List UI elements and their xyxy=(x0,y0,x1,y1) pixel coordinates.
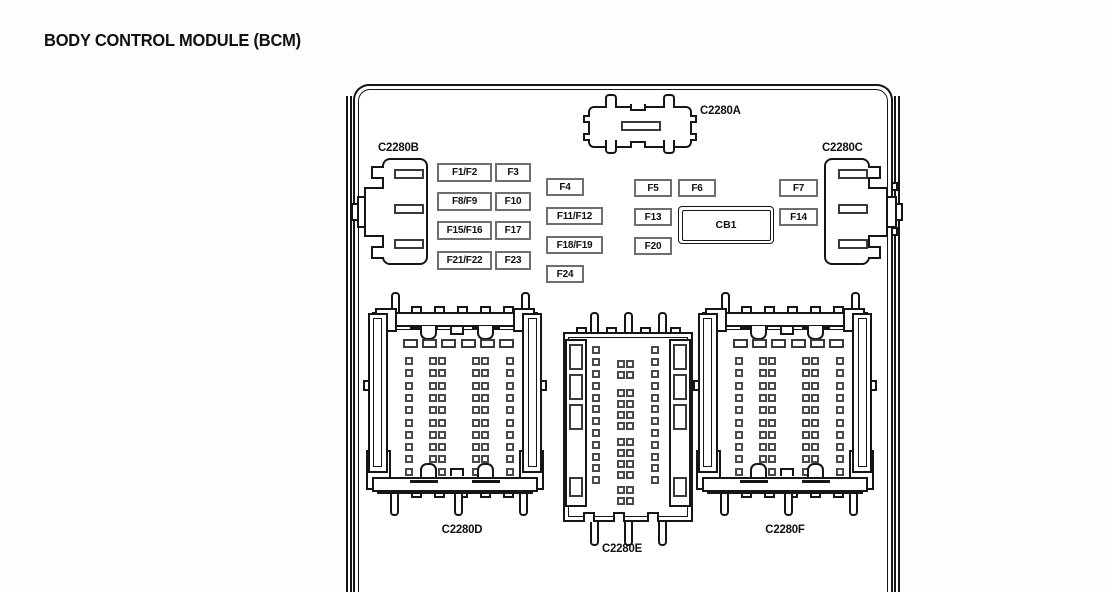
c2280c-slot xyxy=(838,204,868,214)
c2280c-step xyxy=(868,166,881,179)
c2280a-notch xyxy=(630,104,646,111)
c2280e-part xyxy=(592,464,600,472)
c2280f-part xyxy=(735,369,743,377)
c2280e-part xyxy=(617,389,625,397)
c2280f-part xyxy=(735,431,743,439)
c2280f-part xyxy=(703,318,712,467)
c2280f-part xyxy=(768,431,776,439)
c2280f-part xyxy=(802,480,830,483)
c2280f-part xyxy=(802,406,810,414)
c2280f-part xyxy=(829,339,844,348)
c2280d-part xyxy=(499,339,514,348)
c2280d-part xyxy=(506,431,514,439)
c2280d-part xyxy=(506,443,514,451)
c2280d-part xyxy=(429,443,437,451)
c2280e-part xyxy=(651,476,659,484)
c2280f-part xyxy=(750,326,767,340)
c2280d-part xyxy=(450,468,464,476)
c2280f-part xyxy=(768,406,776,414)
c2280e-part xyxy=(569,374,583,400)
c2280e-part xyxy=(592,394,600,402)
c2280f-part xyxy=(807,463,824,477)
c2280d-part xyxy=(477,463,494,477)
c2280e-part xyxy=(673,477,687,497)
left-mount-rail xyxy=(346,96,352,592)
c2280e-part xyxy=(592,453,600,461)
c2280a-keyway xyxy=(690,133,697,141)
c2280f-part xyxy=(836,468,844,476)
c2280e-part xyxy=(673,374,687,400)
c2280d-part xyxy=(472,431,480,439)
rail-fastener xyxy=(891,227,898,236)
c2280e-part xyxy=(569,344,583,370)
c2280d-part xyxy=(438,468,446,476)
fuse-box-f5: F5 xyxy=(634,179,672,197)
c2280f-part xyxy=(810,339,825,348)
c2280e-part xyxy=(592,476,600,484)
c2280e-part xyxy=(651,346,659,354)
c2280e-part xyxy=(617,411,625,419)
c2280e-part xyxy=(626,438,634,446)
c2280d-part xyxy=(481,443,489,451)
c2280d-part xyxy=(472,419,480,427)
c2280d-part xyxy=(405,455,413,463)
c2280f-part xyxy=(836,443,844,451)
c2280c-step xyxy=(868,246,881,259)
c2280f-part xyxy=(768,382,776,390)
c2280e-part xyxy=(617,422,625,430)
c2280f-part xyxy=(836,394,844,402)
c2280d-part xyxy=(405,357,413,365)
c2280f-part xyxy=(735,382,743,390)
c2280e-part xyxy=(592,370,600,378)
c2280a-keyway xyxy=(690,115,697,123)
c2280f-part xyxy=(759,443,767,451)
c2280f-part xyxy=(811,443,819,451)
c2280d-part xyxy=(429,369,437,377)
c2280e-part xyxy=(626,497,634,505)
fuse-box-f6: F6 xyxy=(678,179,716,197)
fuse-box-f21-f22: F21/F22 xyxy=(437,251,492,270)
fuse-box-f17: F17 xyxy=(495,221,531,240)
c2280e-part xyxy=(626,471,634,479)
c2280d-part xyxy=(438,382,446,390)
right-mount-rail xyxy=(894,96,900,592)
c2280e-part xyxy=(583,512,595,522)
c2280a-tab xyxy=(605,140,617,154)
c2280f-part xyxy=(858,318,867,467)
c2280d-part xyxy=(420,463,437,477)
c2280d-part xyxy=(422,339,437,348)
c2280f-part xyxy=(802,419,810,427)
c2280f-part xyxy=(811,431,819,439)
c2280d-part xyxy=(429,419,437,427)
c2280f-part xyxy=(836,406,844,414)
c2280f-part xyxy=(811,382,819,390)
c2280e-part xyxy=(617,497,625,505)
c2280d-part xyxy=(438,369,446,377)
c2280f-part xyxy=(768,468,776,476)
c2280d-part xyxy=(480,339,495,348)
c2280e-part xyxy=(617,438,625,446)
c2280b-slot xyxy=(394,169,424,179)
c2280e-part xyxy=(651,441,659,449)
c2280d-part xyxy=(438,406,446,414)
c2280f-part xyxy=(759,357,767,365)
c2280d-part xyxy=(429,406,437,414)
c2280e-part xyxy=(592,346,600,354)
c2280e-part xyxy=(592,429,600,437)
c2280e-part xyxy=(613,512,625,522)
c2280d-part xyxy=(405,419,413,427)
c2280d-part xyxy=(481,419,489,427)
c2280f-part xyxy=(811,406,819,414)
c2280d-part xyxy=(472,357,480,365)
c2280b-slot xyxy=(394,204,424,214)
fuse-box-f18-f19: F18/F19 xyxy=(546,236,603,254)
c2280e-part xyxy=(647,512,659,522)
c2280a-keyway xyxy=(583,133,590,141)
c2280d-part xyxy=(438,357,446,365)
c2280d-part xyxy=(438,455,446,463)
c2280e-part xyxy=(626,486,634,494)
c2280e-part xyxy=(673,344,687,370)
fuse-box-f11-f12: F11/F12 xyxy=(546,207,603,225)
connector-c2280e-label: C2280E xyxy=(565,541,679,555)
c2280d-part xyxy=(405,406,413,414)
c2280f-part xyxy=(759,394,767,402)
c2280d-part xyxy=(477,326,494,340)
c2280f-part xyxy=(735,468,743,476)
c2280c-slot xyxy=(838,239,868,249)
c2280e-part xyxy=(626,371,634,379)
c2280d-part xyxy=(405,394,413,402)
c2280d-part xyxy=(472,406,480,414)
rail-fastener xyxy=(891,182,898,191)
c2280f-part xyxy=(771,339,786,348)
c2280f-part xyxy=(802,431,810,439)
c2280f-part xyxy=(802,369,810,377)
c2280e-part xyxy=(651,464,659,472)
c2280d-part xyxy=(506,394,514,402)
c2280d-part xyxy=(472,455,480,463)
c2280e-part xyxy=(651,405,659,413)
c2280f-part xyxy=(791,339,806,348)
c2280b-step xyxy=(371,166,384,179)
fuse-box-f23: F23 xyxy=(495,251,531,270)
c2280e-part xyxy=(626,389,634,397)
c2280e-part xyxy=(617,400,625,408)
c2280d-part xyxy=(481,369,489,377)
c2280e-part xyxy=(569,404,583,430)
c2280f-part xyxy=(768,357,776,365)
c2280f-part xyxy=(735,406,743,414)
c2280f-part xyxy=(759,419,767,427)
c2280e-part xyxy=(569,477,583,497)
circuit-breaker-cb1-label: CB1 xyxy=(682,210,771,241)
c2280f-part xyxy=(836,369,844,377)
c2280f-part xyxy=(759,382,767,390)
c2280d-part xyxy=(429,382,437,390)
c2280e-part xyxy=(626,411,634,419)
c2280a-center-slot xyxy=(621,121,661,131)
c2280e-part xyxy=(626,460,634,468)
c2280f-part xyxy=(759,406,767,414)
c2280d-part xyxy=(481,455,489,463)
c2280e-part xyxy=(617,460,625,468)
c2280d-part xyxy=(481,406,489,414)
c2280e-part xyxy=(651,417,659,425)
c2280f-part xyxy=(802,382,810,390)
c2280f-part xyxy=(836,419,844,427)
c2280d-part xyxy=(450,327,464,335)
fuse-box-f13: F13 xyxy=(634,208,672,226)
c2280e-part xyxy=(617,449,625,457)
c2280d-part xyxy=(429,394,437,402)
c2280d-part xyxy=(506,406,514,414)
c2280e-part xyxy=(651,394,659,402)
c2280e-part xyxy=(651,370,659,378)
c2280e-part xyxy=(626,360,634,368)
c2280d-part xyxy=(441,339,456,348)
c2280f-part xyxy=(836,431,844,439)
c2280f-part xyxy=(735,443,743,451)
c2280e-part xyxy=(592,358,600,366)
c2280d-part xyxy=(405,369,413,377)
c2280a-tab xyxy=(663,140,675,154)
c2280e-part xyxy=(651,453,659,461)
c2280d-part xyxy=(472,443,480,451)
c2280f-part xyxy=(733,339,748,348)
c2280f-part xyxy=(811,369,819,377)
c2280f-part xyxy=(802,443,810,451)
c2280f-part xyxy=(768,419,776,427)
c2280e-part xyxy=(592,382,600,390)
c2280d-part xyxy=(405,443,413,451)
fuse-box-f24: F24 xyxy=(546,265,584,283)
connector-c2280f-label: C2280F xyxy=(728,522,842,536)
c2280e-part xyxy=(626,400,634,408)
c2280d-part xyxy=(506,468,514,476)
fuse-box-f7: F7 xyxy=(779,179,818,197)
c2280d-part xyxy=(405,431,413,439)
c2280e-part xyxy=(617,471,625,479)
c2280d-part xyxy=(506,419,514,427)
c2280f-part xyxy=(811,455,819,463)
c2280e-part xyxy=(651,382,659,390)
c2280d-part xyxy=(506,369,514,377)
c2280d-part xyxy=(461,339,476,348)
c2280f-part xyxy=(807,326,824,340)
c2280e-part xyxy=(617,371,625,379)
connector-c2280c-label: C2280C xyxy=(822,140,863,154)
c2280b-latch xyxy=(364,187,384,237)
c2280e-part xyxy=(592,441,600,449)
c2280e-part xyxy=(626,449,634,457)
c2280f-part xyxy=(780,327,794,335)
c2280d-part xyxy=(429,455,437,463)
c2280e-part xyxy=(651,429,659,437)
c2280f-part xyxy=(836,382,844,390)
c2280f-part xyxy=(759,455,767,463)
bcm-fuse-diagram: BODY CONTROL MODULE (BCM) C2280A C2280B … xyxy=(0,0,1112,592)
c2280f-part xyxy=(752,339,767,348)
fuse-box-f14: F14 xyxy=(779,208,818,226)
c2280f-part xyxy=(759,431,767,439)
c2280d-part xyxy=(429,357,437,365)
c2280a-notch xyxy=(630,141,646,148)
c2280a-tab xyxy=(605,94,617,108)
c2280e-part xyxy=(592,405,600,413)
fuse-box-f3: F3 xyxy=(495,163,531,182)
fuse-box-f4: F4 xyxy=(546,178,584,196)
connector-c2280d-label: C2280D xyxy=(405,522,519,536)
c2280c-latch xyxy=(868,187,888,237)
c2280d-part xyxy=(481,382,489,390)
c2280b-step xyxy=(371,246,384,259)
c2280f-part xyxy=(735,419,743,427)
c2280f-part xyxy=(802,394,810,402)
fuse-box-f1-f2: F1/F2 xyxy=(437,163,492,182)
c2280d-part xyxy=(438,443,446,451)
c2280d-part xyxy=(410,480,438,483)
c2280f-part xyxy=(768,455,776,463)
c2280d-part xyxy=(481,357,489,365)
c2280b-slot xyxy=(394,239,424,249)
c2280f-part xyxy=(735,357,743,365)
connector-c2280a-label: C2280A xyxy=(700,103,741,117)
c2280d-part xyxy=(403,339,418,348)
c2280d-part xyxy=(405,382,413,390)
c2280d-part xyxy=(420,326,437,340)
c2280d-part xyxy=(506,382,514,390)
c2280d-part xyxy=(506,455,514,463)
c2280e-part xyxy=(651,358,659,366)
c2280f-part xyxy=(802,357,810,365)
c2280e-part xyxy=(592,417,600,425)
c2280d-part xyxy=(472,480,500,483)
c2280d-part xyxy=(481,431,489,439)
c2280f-part xyxy=(802,455,810,463)
c2280f-part xyxy=(740,480,768,483)
c2280d-part xyxy=(429,431,437,439)
c2280e-part xyxy=(673,404,687,430)
c2280d-part xyxy=(438,431,446,439)
c2280f-part xyxy=(836,455,844,463)
c2280f-part xyxy=(811,394,819,402)
c2280d-part xyxy=(472,369,480,377)
c2280c-slot xyxy=(838,169,868,179)
c2280f-part xyxy=(780,468,794,476)
c2280d-part xyxy=(372,477,538,492)
c2280d-part xyxy=(472,382,480,390)
c2280f-part xyxy=(768,394,776,402)
c2280e-part xyxy=(626,422,634,430)
c2280a-keyway xyxy=(583,115,590,123)
c2280f-part xyxy=(811,357,819,365)
c2280d-part xyxy=(438,394,446,402)
c2280a-tab xyxy=(663,94,675,108)
c2280d-part xyxy=(438,419,446,427)
c2280d-part xyxy=(373,318,382,467)
c2280d-part xyxy=(405,468,413,476)
c2280f-part xyxy=(836,357,844,365)
c2280f-part xyxy=(759,369,767,377)
c2280d-part xyxy=(472,394,480,402)
c2280f-part xyxy=(811,419,819,427)
c2280f-part xyxy=(702,477,868,492)
fuse-box-f8-f9: F8/F9 xyxy=(437,192,492,211)
fuse-box-f10: F10 xyxy=(495,192,531,211)
fuse-box-f15-f16: F15/F16 xyxy=(437,221,492,240)
c2280f-part xyxy=(750,463,767,477)
c2280d-part xyxy=(528,318,537,467)
c2280e-part xyxy=(617,486,625,494)
c2280f-part xyxy=(768,369,776,377)
connector-c2280b-label: C2280B xyxy=(378,140,419,154)
fuse-box-f20: F20 xyxy=(634,237,672,255)
c2280d-part xyxy=(481,394,489,402)
c2280f-part xyxy=(735,455,743,463)
c2280e-part xyxy=(617,360,625,368)
c2280f-part xyxy=(735,394,743,402)
c2280f-part xyxy=(768,443,776,451)
page-title: BODY CONTROL MODULE (BCM) xyxy=(44,30,301,51)
c2280d-part xyxy=(506,357,514,365)
circuit-breaker-cb1: CB1 xyxy=(678,206,774,244)
